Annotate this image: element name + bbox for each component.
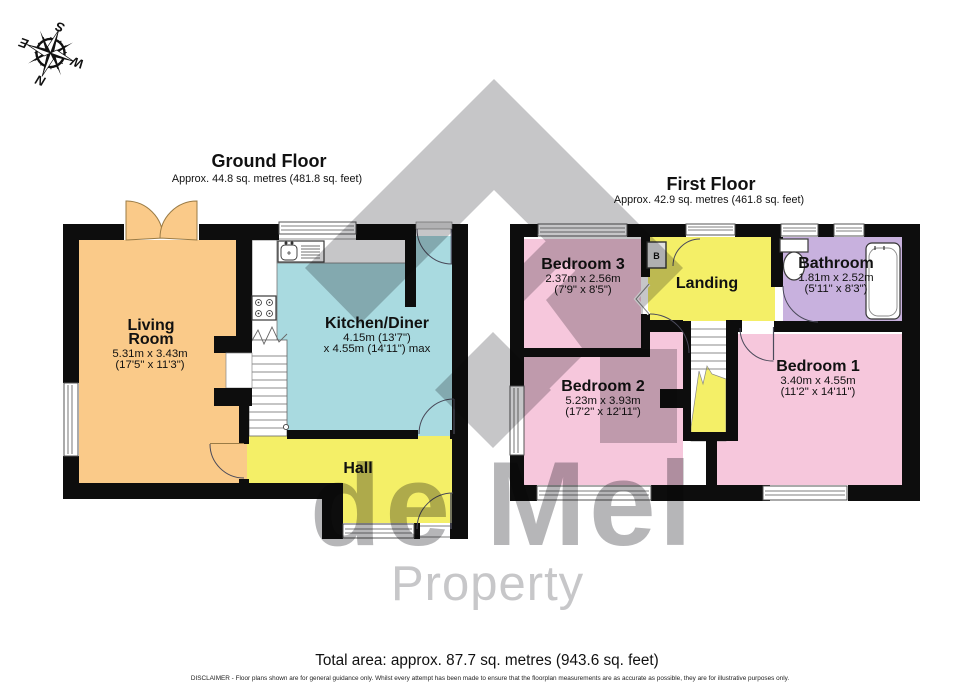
svg-text:(5'11" x 8'3"): (5'11" x 8'3") — [805, 283, 868, 295]
svg-text:Property: Property — [391, 557, 584, 611]
svg-text:Ground Floor: Ground Floor — [212, 151, 327, 171]
svg-text:Landing: Landing — [676, 275, 738, 292]
svg-text:(11'2" x 14'11"): (11'2" x 14'11") — [781, 386, 856, 398]
svg-text:Mel: Mel — [486, 437, 695, 571]
svg-text:DISCLAIMER - Floor plans show: DISCLAIMER - Floor plans shown are for g… — [191, 675, 790, 682]
svg-text:Room: Room — [128, 331, 173, 348]
svg-text:Total area: approx. 87.7 sq. m: Total area: approx. 87.7 sq. metres (943… — [315, 652, 659, 669]
svg-text:Approx. 42.9 sq. metres (461.8: Approx. 42.9 sq. metres (461.8 sq. feet) — [614, 194, 804, 206]
svg-text:(17'5" x 11'3"): (17'5" x 11'3") — [115, 359, 184, 371]
svg-text:de: de — [310, 440, 454, 570]
svg-text:Kitchen/Diner: Kitchen/Diner — [325, 315, 429, 332]
svg-text:Bedroom 1: Bedroom 1 — [776, 358, 860, 375]
svg-text:Bathroom: Bathroom — [798, 255, 874, 272]
svg-text:x 4.55m (14'11") max: x 4.55m (14'11") max — [324, 343, 431, 355]
svg-text:Approx. 44.8 sq. metres (481.8: Approx. 44.8 sq. metres (481.8 sq. feet) — [172, 173, 362, 185]
svg-text:First Floor: First Floor — [667, 174, 756, 194]
